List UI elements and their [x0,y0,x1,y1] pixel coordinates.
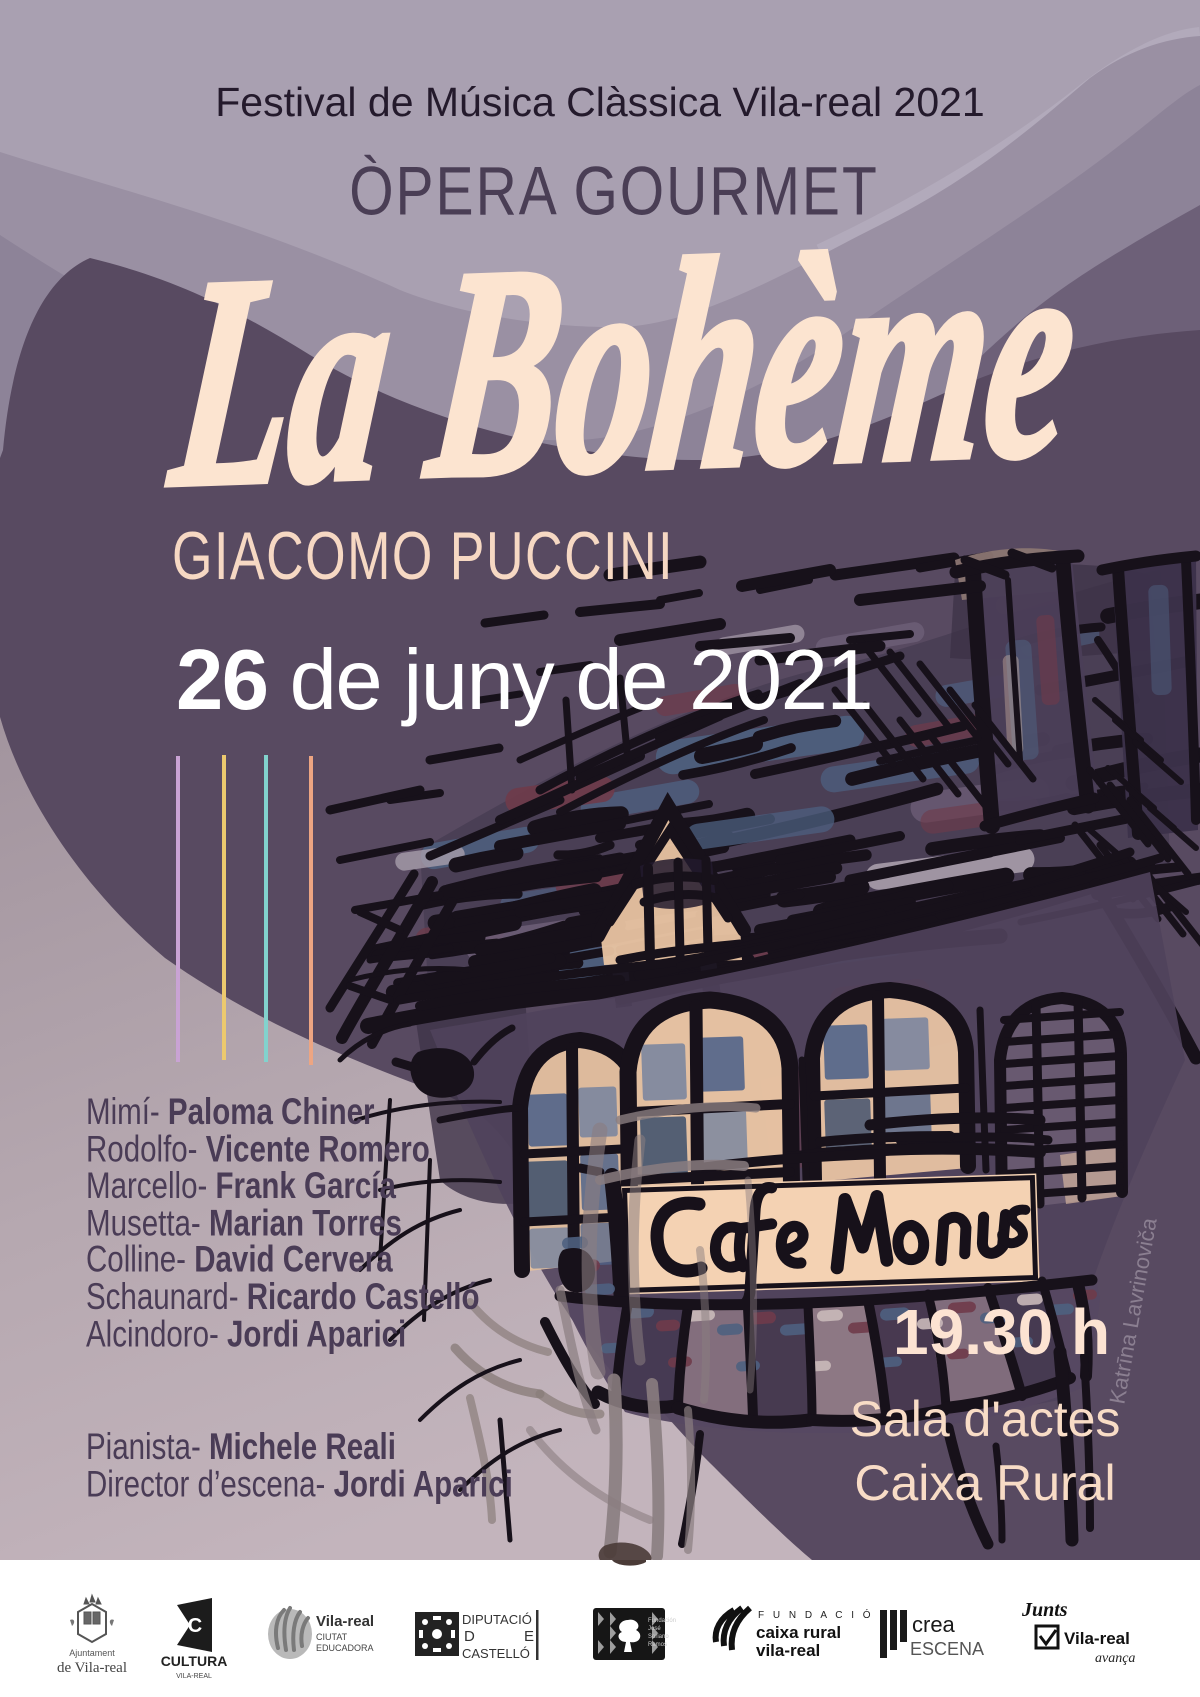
svg-text:DIPUTACIÓ: DIPUTACIÓ [462,1612,532,1627]
svg-text:E: E [524,1628,534,1645]
svg-text:F U N D A C I Ó: F U N D A C I Ó [758,1608,874,1621]
svg-text:​de Vila-real: ​de Vila-real [57,1660,127,1676]
svg-text:EDUCADORA: EDUCADORA [316,1643,374,1653]
svg-text:CIUTAT: CIUTAT [316,1632,348,1642]
svg-text:crea: crea [912,1612,956,1637]
svg-text:La Bohème: La Bohème [158,185,1090,550]
svg-text:Vila-real: Vila-real [316,1613,374,1630]
svg-text:vila-real: vila-real [756,1641,820,1660]
svg-text:Ramos: Ramos [648,1642,667,1648]
svg-text:VILA-REAL: VILA-REAL [176,1673,212,1680]
svg-text:caixa rural: caixa rural [756,1623,841,1642]
svg-text:Fundación: Fundación [648,1618,676,1624]
svg-text:Vila-real: Vila-real [1064,1629,1130,1648]
svg-text:CASTELLÓ: CASTELLÓ [462,1646,530,1661]
svg-text:D: D [464,1628,475,1645]
svg-text:avança: avança [1095,1651,1135,1666]
svg-text:C: C [188,1615,202,1637]
svg-text:Junts: Junts [1021,1599,1068,1621]
svg-text:Ajuntament: Ajuntament [69,1648,115,1658]
svg-text:José: José [648,1626,661,1632]
svg-text:ESCENA: ESCENA [910,1639,984,1659]
svg-text:CULTURA: CULTURA [161,1653,228,1669]
svg-text:Soriano: Soriano [648,1634,669,1640]
